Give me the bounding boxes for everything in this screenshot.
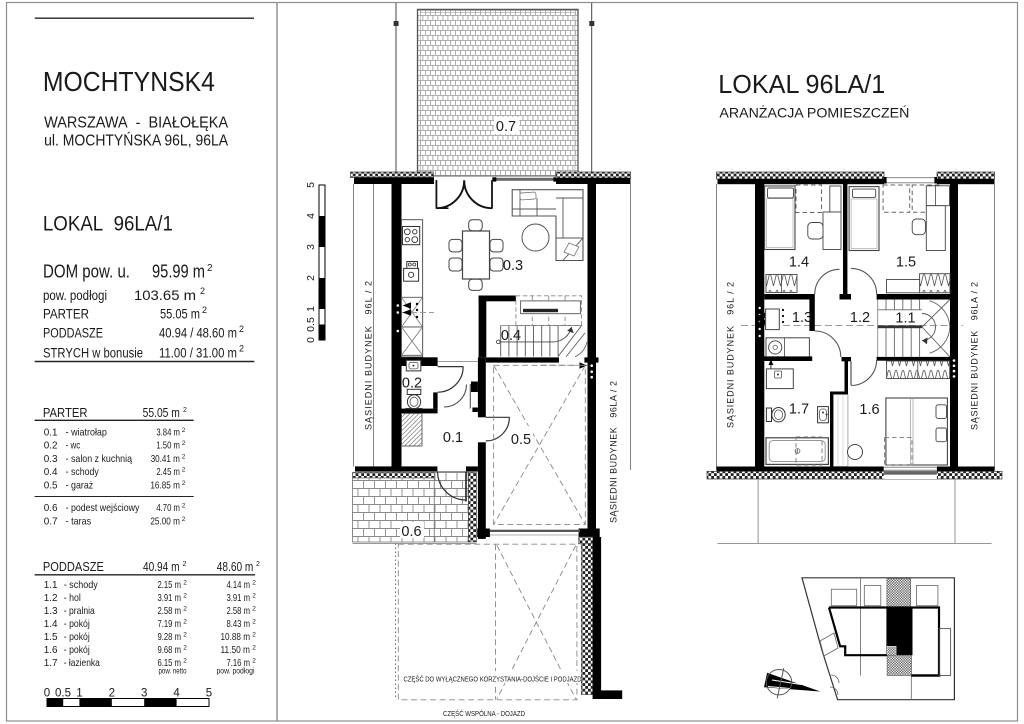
svg-text:48.60 m: 48.60 m xyxy=(217,560,254,574)
svg-text:2: 2 xyxy=(252,645,256,652)
svg-text:2: 2 xyxy=(207,263,213,274)
svg-text:2: 2 xyxy=(109,688,115,700)
svg-text:3: 3 xyxy=(305,244,317,250)
svg-text:2: 2 xyxy=(183,561,187,568)
svg-text:CZĘŚĆ WSPÓLNA - DOJAZD: CZĘŚĆ WSPÓLNA - DOJAZD xyxy=(443,709,525,718)
svg-text:2: 2 xyxy=(183,619,187,626)
svg-text:1.7: 1.7 xyxy=(789,402,809,418)
svg-text:CZĘŚĆ DO WYŁĄCZNEGO KORZYSTANI: CZĘŚĆ DO WYŁĄCZNEGO KORZYSTANIA-DOJŚCIE … xyxy=(404,675,582,684)
svg-text:0.3: 0.3 xyxy=(44,453,58,465)
svg-text:- schody: - schody xyxy=(64,579,99,591)
svg-text:0.2: 0.2 xyxy=(402,376,422,392)
svg-text:0.5: 0.5 xyxy=(511,432,531,448)
svg-text:- pralnia: - pralnia xyxy=(64,605,95,617)
svg-text:- taras: - taras xyxy=(66,515,92,527)
svg-text:SĄSIEDNI BUDYNEK 96LA / 2: SĄSIEDNI BUDYNEK 96LA / 2 xyxy=(609,381,619,523)
svg-text:1.6: 1.6 xyxy=(44,644,58,656)
svg-text:1.3: 1.3 xyxy=(44,605,58,617)
svg-text:ul. MOCHTYŃSKA 96L, 96LA: ul. MOCHTYŃSKA 96L, 96LA xyxy=(44,131,228,150)
svg-text:2.58 m: 2.58 m xyxy=(158,605,182,617)
svg-text:2: 2 xyxy=(183,632,187,639)
svg-text:2: 2 xyxy=(182,453,186,460)
svg-text:10.88 m: 10.88 m xyxy=(221,631,251,643)
svg-text:2: 2 xyxy=(252,658,256,665)
svg-text:PODDASZE: PODDASZE xyxy=(43,325,103,340)
svg-text:30.41 m: 30.41 m xyxy=(151,453,180,465)
svg-text:0.1: 0.1 xyxy=(44,427,58,439)
svg-text:1: 1 xyxy=(76,688,82,700)
svg-text:1: 1 xyxy=(305,306,317,312)
svg-text:2: 2 xyxy=(202,305,207,315)
svg-text:PARTER: PARTER xyxy=(43,406,88,420)
svg-text:SĄSIEDNI BUDYNEK 96LA / 2: SĄSIEDNI BUDYNEK 96LA / 2 xyxy=(970,282,980,430)
svg-text:11.50 m: 11.50 m xyxy=(221,644,251,656)
svg-text:1.50 m: 1.50 m xyxy=(156,440,180,452)
svg-text:7.19 m: 7.19 m xyxy=(158,618,182,630)
svg-text:2: 2 xyxy=(183,606,187,613)
svg-text:16.85 m: 16.85 m xyxy=(150,479,180,491)
svg-text:2: 2 xyxy=(182,440,186,447)
svg-text:3: 3 xyxy=(141,688,147,700)
svg-text:1.2: 1.2 xyxy=(44,592,58,604)
svg-text:3.91 m: 3.91 m xyxy=(158,592,182,604)
svg-text:0.2: 0.2 xyxy=(44,440,58,452)
svg-text:2.15 m: 2.15 m xyxy=(158,579,182,591)
svg-text:SĄSIEDNI BUDYNEK 96L / 2: SĄSIEDNI BUDYNEK 96L / 2 xyxy=(364,281,374,430)
svg-text:55.05 m: 55.05 m xyxy=(160,307,200,322)
svg-text:1.3: 1.3 xyxy=(792,310,812,326)
svg-text:2: 2 xyxy=(183,407,187,414)
svg-text:2: 2 xyxy=(183,645,187,652)
svg-text:9.68 m: 9.68 m xyxy=(158,644,182,656)
svg-text:103.65 m: 103.65 m xyxy=(134,288,196,303)
svg-text:- garaż: - garaż xyxy=(66,479,94,491)
svg-text:2: 2 xyxy=(182,516,186,523)
svg-text:4: 4 xyxy=(173,688,180,700)
svg-text:2: 2 xyxy=(252,580,256,587)
svg-text:1.4: 1.4 xyxy=(44,618,58,630)
svg-text:pow. podłogi: pow. podłogi xyxy=(217,667,255,676)
svg-text:40.94 m: 40.94 m xyxy=(143,560,180,574)
svg-text:- hol: - hol xyxy=(64,592,81,604)
svg-text:2: 2 xyxy=(182,503,186,510)
svg-text:0.4: 0.4 xyxy=(44,466,58,478)
svg-text:0.5: 0.5 xyxy=(55,688,71,700)
svg-text:- łazienka: - łazienka xyxy=(64,657,100,669)
svg-text:2: 2 xyxy=(239,324,244,334)
svg-text:- schody: - schody xyxy=(66,466,100,478)
svg-text:DOM pow. u.: DOM pow. u. xyxy=(43,262,130,282)
svg-text:1.1: 1.1 xyxy=(44,579,58,591)
svg-text:0.7: 0.7 xyxy=(44,515,58,527)
svg-text:0.1: 0.1 xyxy=(443,430,463,446)
svg-text:1.2: 1.2 xyxy=(850,310,870,326)
svg-text:WARSZAWA - BIAŁOŁĘKA: WARSZAWA - BIAŁOŁĘKA xyxy=(44,115,228,132)
svg-text:9.28 m: 9.28 m xyxy=(158,631,182,643)
svg-text:2.45 m: 2.45 m xyxy=(156,466,180,478)
svg-text:- salon z kuchnią: - salon z kuchnią xyxy=(66,453,133,465)
svg-text:2: 2 xyxy=(183,580,187,587)
svg-text:2: 2 xyxy=(183,658,187,665)
svg-text:0.7: 0.7 xyxy=(496,119,516,135)
svg-text:2.58 m: 2.58 m xyxy=(227,605,251,617)
svg-text:25.00 m: 25.00 m xyxy=(150,515,180,527)
svg-text:1.6: 1.6 xyxy=(859,402,879,418)
svg-text:2: 2 xyxy=(182,480,186,487)
svg-text:2: 2 xyxy=(183,593,187,600)
svg-text:4: 4 xyxy=(305,213,317,219)
svg-text:2: 2 xyxy=(252,632,256,639)
svg-text:- podest wejściowy: - podest wejściowy xyxy=(66,502,140,514)
svg-text:2: 2 xyxy=(252,619,256,626)
svg-text:2: 2 xyxy=(252,606,256,613)
svg-text:1.1: 1.1 xyxy=(895,311,915,327)
svg-text:2: 2 xyxy=(182,427,186,434)
svg-text:- pokój: - pokój xyxy=(64,644,90,656)
svg-text:LOKAL 96LA/1: LOKAL 96LA/1 xyxy=(718,69,885,99)
svg-text:2: 2 xyxy=(200,286,205,296)
svg-text:PODDASZE: PODDASZE xyxy=(43,560,104,574)
svg-text:1.5: 1.5 xyxy=(44,631,58,643)
svg-text:2: 2 xyxy=(239,344,244,354)
svg-text:3.91 m: 3.91 m xyxy=(227,592,251,604)
svg-text:0.6: 0.6 xyxy=(401,524,421,540)
svg-text:- pokój: - pokój xyxy=(64,631,90,643)
svg-text:55.05 m: 55.05 m xyxy=(143,406,180,420)
svg-text:1.7: 1.7 xyxy=(44,657,58,669)
svg-text:95.99 m: 95.99 m xyxy=(152,262,205,282)
svg-text:2: 2 xyxy=(256,561,260,568)
svg-text:- wiatrołap: - wiatrołap xyxy=(66,427,107,439)
svg-text:0.5: 0.5 xyxy=(305,317,317,332)
svg-text:0.5: 0.5 xyxy=(44,479,58,491)
svg-text:11.00 / 31.00 m: 11.00 / 31.00 m xyxy=(159,345,237,360)
svg-text:ARANŻACJA POMIESZCZEŃ: ARANŻACJA POMIESZCZEŃ xyxy=(719,104,909,121)
svg-text:5: 5 xyxy=(206,688,212,700)
svg-text:STRYCH w bonusie: STRYCH w bonusie xyxy=(43,345,143,360)
svg-text:4.70 m: 4.70 m xyxy=(156,502,180,514)
svg-text:1.4: 1.4 xyxy=(789,255,809,271)
svg-text:LOKAL 96LA/1: LOKAL 96LA/1 xyxy=(43,212,173,236)
svg-text:0.4: 0.4 xyxy=(501,328,521,344)
svg-text:4.14 m: 4.14 m xyxy=(227,579,251,591)
svg-text:0: 0 xyxy=(305,337,317,343)
svg-text:3.84 m: 3.84 m xyxy=(156,427,180,439)
svg-text:40.94 / 48.60 m: 40.94 / 48.60 m xyxy=(159,325,237,340)
svg-text:1.5: 1.5 xyxy=(896,255,916,271)
svg-text:8.43 m: 8.43 m xyxy=(227,618,251,630)
svg-text:pow. netto: pow. netto xyxy=(159,667,187,676)
svg-text:0: 0 xyxy=(44,688,50,700)
svg-text:- pokój: - pokój xyxy=(64,618,90,630)
svg-text:2: 2 xyxy=(305,275,317,281)
svg-text:pow. podłogi: pow. podłogi xyxy=(43,288,107,303)
svg-text:0.6: 0.6 xyxy=(44,502,58,514)
svg-text:2: 2 xyxy=(182,467,186,474)
svg-text:2: 2 xyxy=(252,593,256,600)
svg-text:PARTER: PARTER xyxy=(43,307,89,322)
svg-text:- wc: - wc xyxy=(66,440,81,452)
svg-text:SĄSIEDNI BUDYNEK 96L / 2: SĄSIEDNI BUDYNEK 96L / 2 xyxy=(726,282,736,428)
svg-text:MOCHTYNSK4: MOCHTYNSK4 xyxy=(43,66,215,97)
svg-text:0.3: 0.3 xyxy=(503,258,523,274)
svg-text:5: 5 xyxy=(305,182,317,188)
